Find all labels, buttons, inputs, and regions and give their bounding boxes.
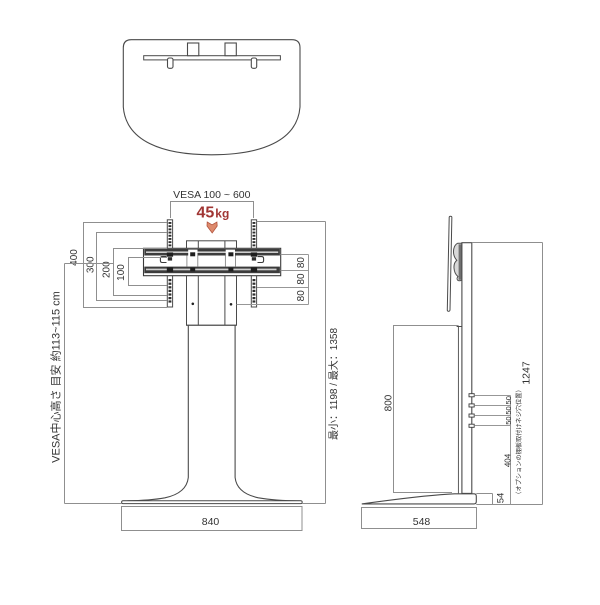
svg-text:1247: 1247 xyxy=(521,361,533,385)
svg-text:最小：1198 / 最大：1358: 最小：1198 / 最大：1358 xyxy=(327,328,340,441)
svg-text:548: 548 xyxy=(413,516,431,528)
svg-text:80: 80 xyxy=(296,273,307,285)
svg-text:404: 404 xyxy=(504,453,513,467)
svg-text:50: 50 xyxy=(504,416,513,424)
svg-text:VESA中心高さ 目安 約113~115 cm: VESA中心高さ 目安 約113~115 cm xyxy=(49,291,63,463)
svg-text:VESA 100 ~ 600: VESA 100 ~ 600 xyxy=(173,189,251,201)
svg-text:80: 80 xyxy=(296,290,307,302)
svg-text:840: 840 xyxy=(202,516,220,528)
svg-text:80: 80 xyxy=(296,257,307,269)
svg-text:300: 300 xyxy=(85,256,96,273)
svg-text:（オプションの棚板取付けネジ穴位置）: （オプションの棚板取付けネジ穴位置） xyxy=(515,386,523,497)
svg-text:54: 54 xyxy=(495,493,506,504)
svg-text:800: 800 xyxy=(383,394,394,411)
svg-text:50: 50 xyxy=(504,406,513,414)
svg-text:100: 100 xyxy=(116,264,127,281)
svg-text:50: 50 xyxy=(504,396,513,404)
svg-text:45 kg: 45 kg xyxy=(197,205,230,222)
